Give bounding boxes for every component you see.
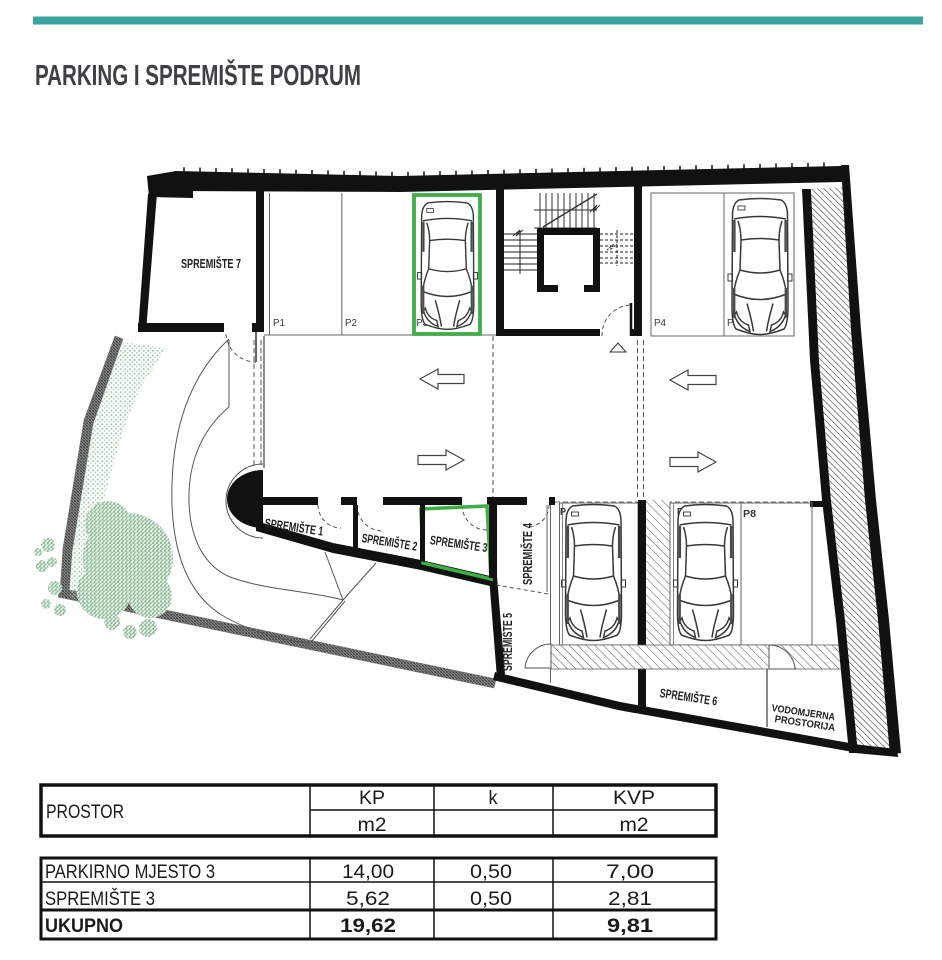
svg-text:KP: KP bbox=[359, 788, 385, 809]
svg-text:k: k bbox=[489, 788, 498, 809]
svg-text:P2: P2 bbox=[345, 318, 357, 329]
svg-text:P1: P1 bbox=[273, 318, 285, 329]
svg-text:5,62: 5,62 bbox=[346, 889, 390, 910]
svg-text:KVP: KVP bbox=[613, 788, 655, 809]
svg-text:m2: m2 bbox=[358, 815, 387, 836]
svg-text:0,50: 0,50 bbox=[470, 862, 512, 883]
svg-text:m2: m2 bbox=[620, 815, 649, 836]
svg-text:P: P bbox=[560, 507, 566, 518]
svg-text:SPREMIŠTE 5: SPREMIŠTE 5 bbox=[500, 613, 515, 671]
svg-text:P8: P8 bbox=[743, 509, 756, 520]
svg-text:PARKIRNO MJESTO 3: PARKIRNO MJESTO 3 bbox=[45, 862, 215, 883]
svg-text:0,50: 0,50 bbox=[470, 889, 512, 910]
svg-text:SPREMIŠTE 4: SPREMIŠTE 4 bbox=[520, 523, 535, 585]
svg-text:SPREMIŠTE 7: SPREMIŠTE 7 bbox=[181, 256, 241, 271]
svg-text:SPREMIŠTE 3: SPREMIŠTE 3 bbox=[45, 888, 155, 910]
svg-text:UKUPNO: UKUPNO bbox=[45, 916, 123, 937]
svg-text:P4: P4 bbox=[654, 318, 666, 329]
svg-text:14,00: 14,00 bbox=[342, 862, 394, 883]
svg-text:PROSTOR: PROSTOR bbox=[46, 802, 124, 823]
svg-text:19,62: 19,62 bbox=[340, 916, 396, 937]
svg-text:PARKING I SPREMIŠTE PODRUM: PARKING I SPREMIŠTE PODRUM bbox=[35, 58, 361, 92]
svg-text:7,00: 7,00 bbox=[606, 862, 654, 883]
svg-text:2,81: 2,81 bbox=[608, 889, 652, 910]
svg-text:9,81: 9,81 bbox=[607, 916, 654, 937]
